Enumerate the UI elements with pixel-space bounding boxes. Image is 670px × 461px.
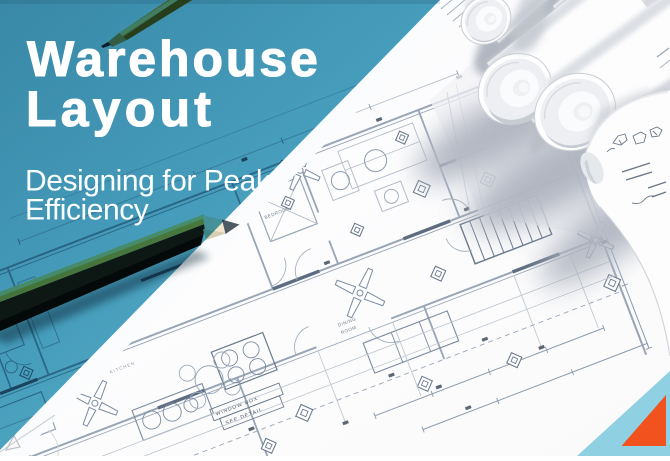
- svg-text:Layout: Layout: [26, 81, 215, 137]
- svg-text:Warehouse: Warehouse: [27, 31, 321, 87]
- svg-text:Efficiency: Efficiency: [25, 194, 149, 227]
